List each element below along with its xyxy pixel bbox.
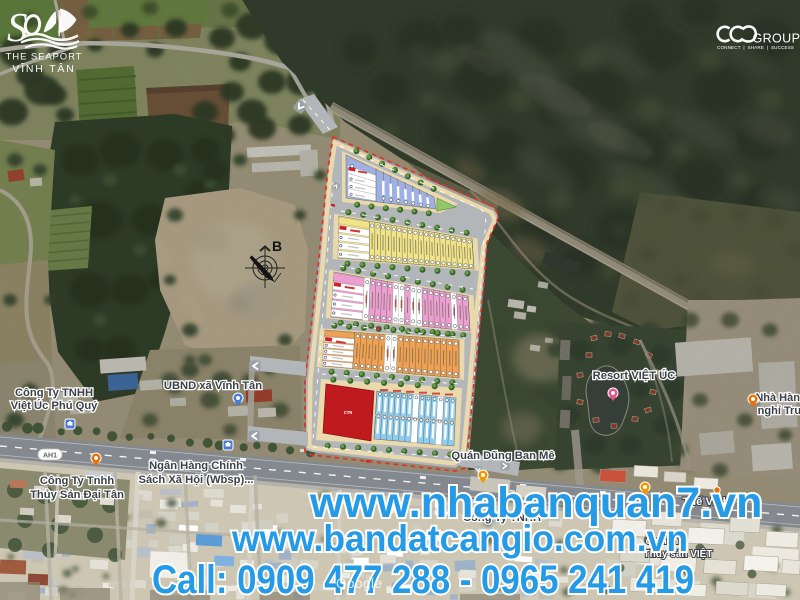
svg-text:Google: Google bbox=[336, 576, 383, 591]
svg-text:AH1: AH1 bbox=[43, 453, 57, 460]
svg-text:Quán Dũng Ban Mê: Quán Dũng Ban Mê bbox=[451, 450, 554, 462]
svg-text:Việt Úc Phú Quý: Việt Úc Phú Quý bbox=[11, 399, 99, 412]
svg-text:Thủy Sản Đại Tân: Thủy Sản Đại Tân bbox=[30, 489, 124, 501]
svg-text:VĨNH TÂN: VĨNH TÂN bbox=[12, 62, 75, 75]
svg-text:CTN: CTN bbox=[344, 410, 353, 415]
svg-text:Sách Xã Hội (Wbsp)...: Sách Xã Hội (Wbsp)... bbox=[139, 474, 254, 486]
svg-text:GROUP: GROUP bbox=[753, 32, 800, 46]
svg-text:www.bandatcangio.com.vn: www.bandatcangio.com.vn bbox=[231, 518, 688, 559]
svg-text:UBND xã Vĩnh Tân: UBND xã Vĩnh Tân bbox=[164, 380, 262, 392]
svg-text:nghỉ Trư: nghỉ Trư bbox=[758, 405, 800, 417]
svg-text:CONNECT | SHARE | SUCCESS: CONNECT | SHARE | SUCCESS bbox=[717, 45, 795, 50]
svg-text:Ngân Hàng Chính: Ngân Hàng Chính bbox=[149, 460, 243, 472]
svg-text:Công Ty Tnhh: Công Ty Tnhh bbox=[40, 475, 115, 487]
svg-text:Nhà Hàng: Nhà Hàng bbox=[755, 392, 800, 404]
svg-text:Resort VIỆT ÚC: Resort VIỆT ÚC bbox=[593, 369, 676, 382]
svg-text:B: B bbox=[272, 238, 282, 254]
svg-text:Công Ty TNHH: Công Ty TNHH bbox=[15, 387, 93, 399]
svg-text:Call: 0909 477 288 - 0965 241: Call: 0909 477 288 - 0965 241 419 bbox=[152, 558, 694, 600]
svg-text:THE SEAPORT: THE SEAPORT bbox=[6, 52, 83, 63]
